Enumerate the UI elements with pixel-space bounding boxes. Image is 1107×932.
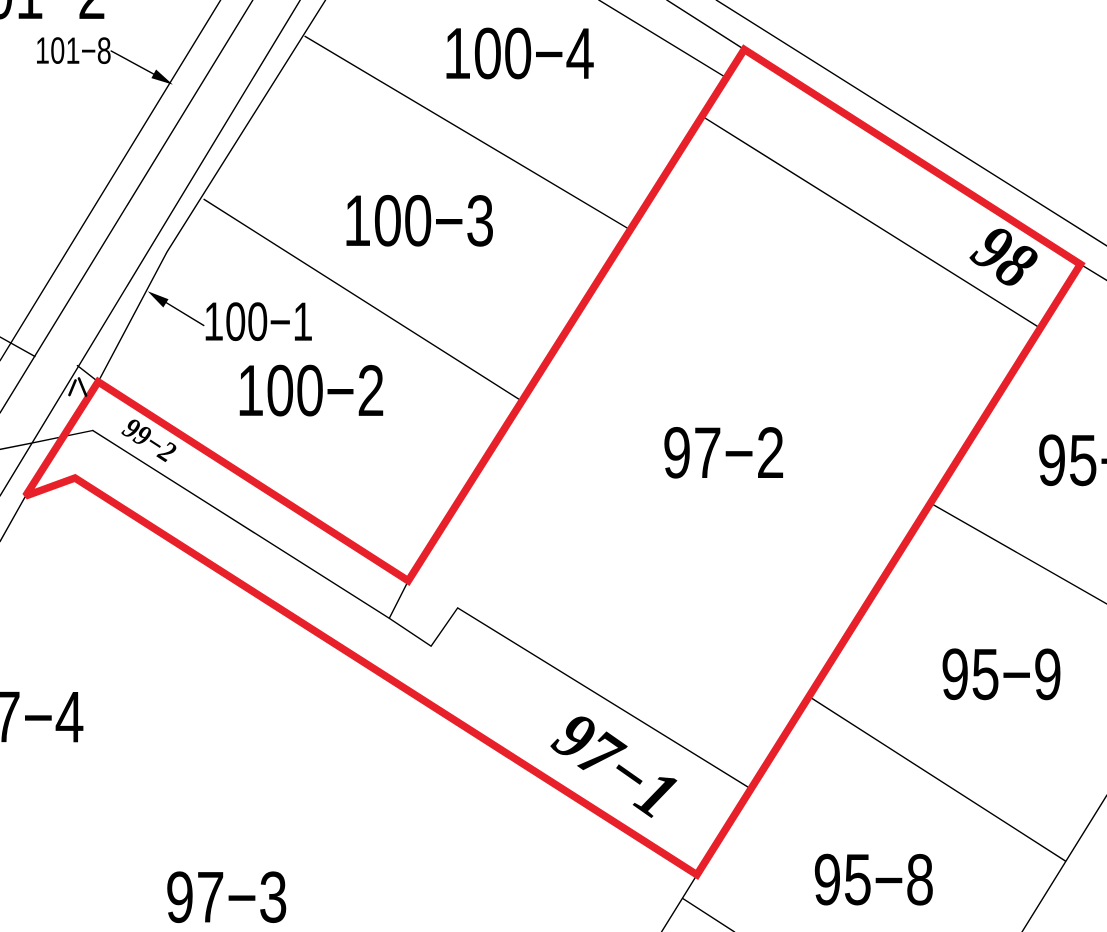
svg-text:100−3: 100−3 (342, 181, 495, 262)
svg-text:97−4: 97−4 (0, 677, 85, 758)
svg-text:97−3: 97−3 (165, 857, 289, 932)
svg-text:100−2: 100−2 (236, 351, 386, 432)
svg-text:101−8: 101−8 (35, 31, 112, 73)
svg-text:95−9: 95−9 (940, 634, 1063, 715)
svg-text:95−7: 95−7 (1036, 420, 1107, 501)
svg-text:100−1: 100−1 (203, 291, 314, 353)
svg-text:101−2: 101−2 (0, 0, 107, 35)
svg-text:95−8: 95−8 (812, 840, 935, 921)
svg-text:97−2: 97−2 (662, 413, 786, 494)
svg-text:100−4: 100−4 (442, 14, 595, 95)
